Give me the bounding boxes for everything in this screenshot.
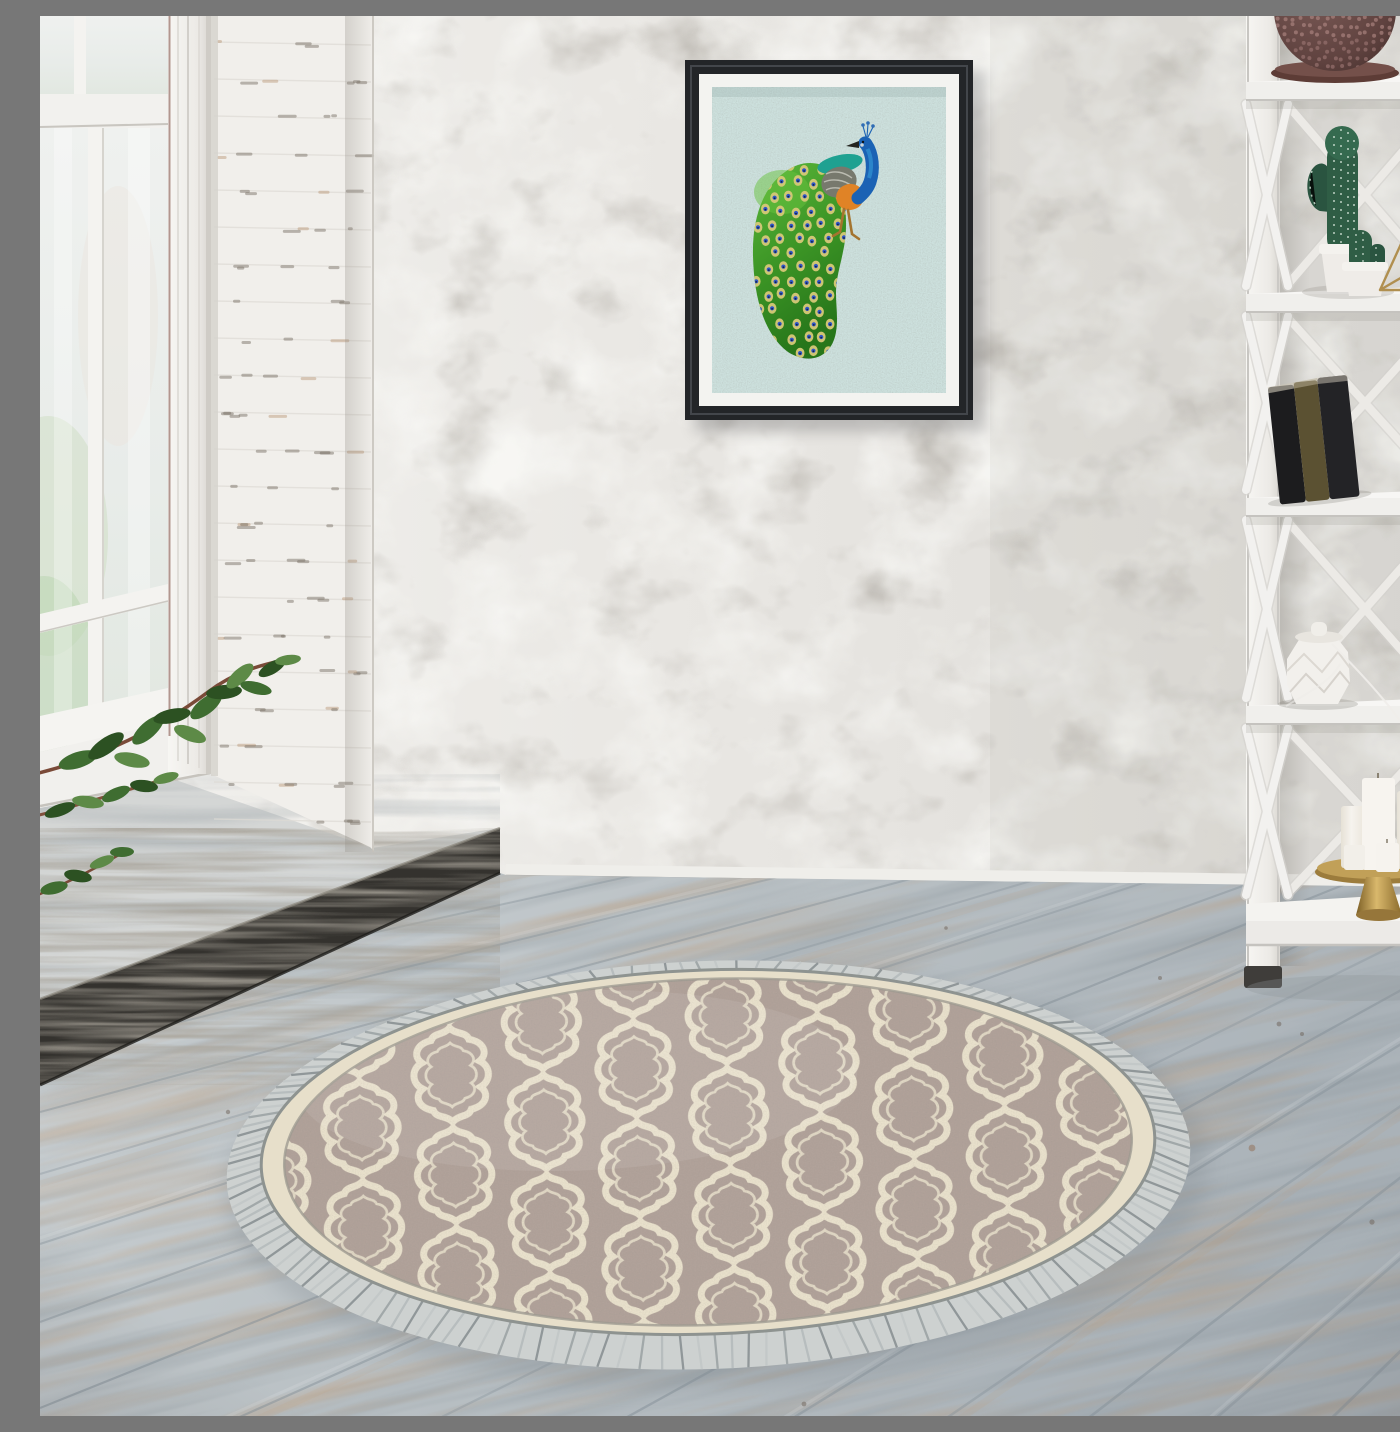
room-photo	[40, 16, 1400, 1416]
photo-vignette	[40, 16, 1400, 1416]
